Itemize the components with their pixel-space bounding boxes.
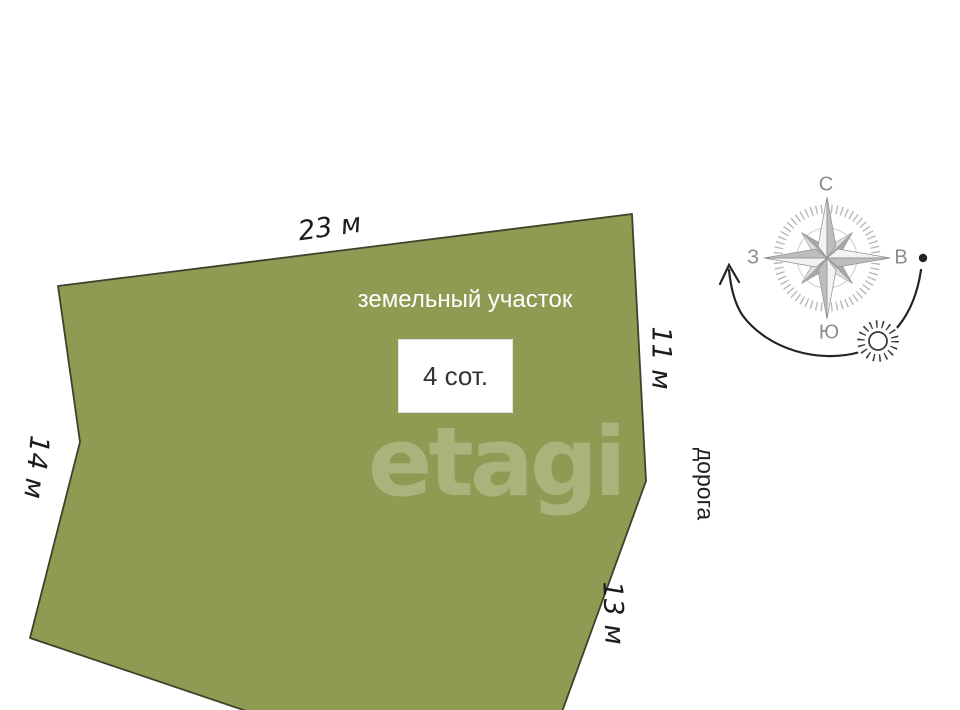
land-plot-diagram: 23 м 11 м 14 м 13 м дорога земельный уча… xyxy=(0,0,960,710)
arrow-start-dot xyxy=(919,254,927,262)
dimension-left: 14 м xyxy=(17,434,54,500)
sun-core xyxy=(869,332,887,350)
compass-label-north: С xyxy=(819,174,833,197)
dimension-bottom: 13 м xyxy=(596,581,629,645)
watermark-logo: etagi xyxy=(368,416,623,511)
parcel-label: земельный участок xyxy=(358,286,573,314)
sun-icon xyxy=(855,318,901,364)
dimension-right: 11 м xyxy=(646,326,677,389)
compass-star-cardinals xyxy=(764,197,890,319)
area-box: 4 сот. xyxy=(398,339,513,413)
road-label: дорога xyxy=(692,448,719,520)
compass-label-west: З xyxy=(747,247,759,270)
compass-rose-icon xyxy=(764,197,890,319)
area-label: 4 сот. xyxy=(423,361,488,392)
compass-label-east: В xyxy=(894,247,907,270)
compass-label-south: Ю xyxy=(819,322,839,345)
